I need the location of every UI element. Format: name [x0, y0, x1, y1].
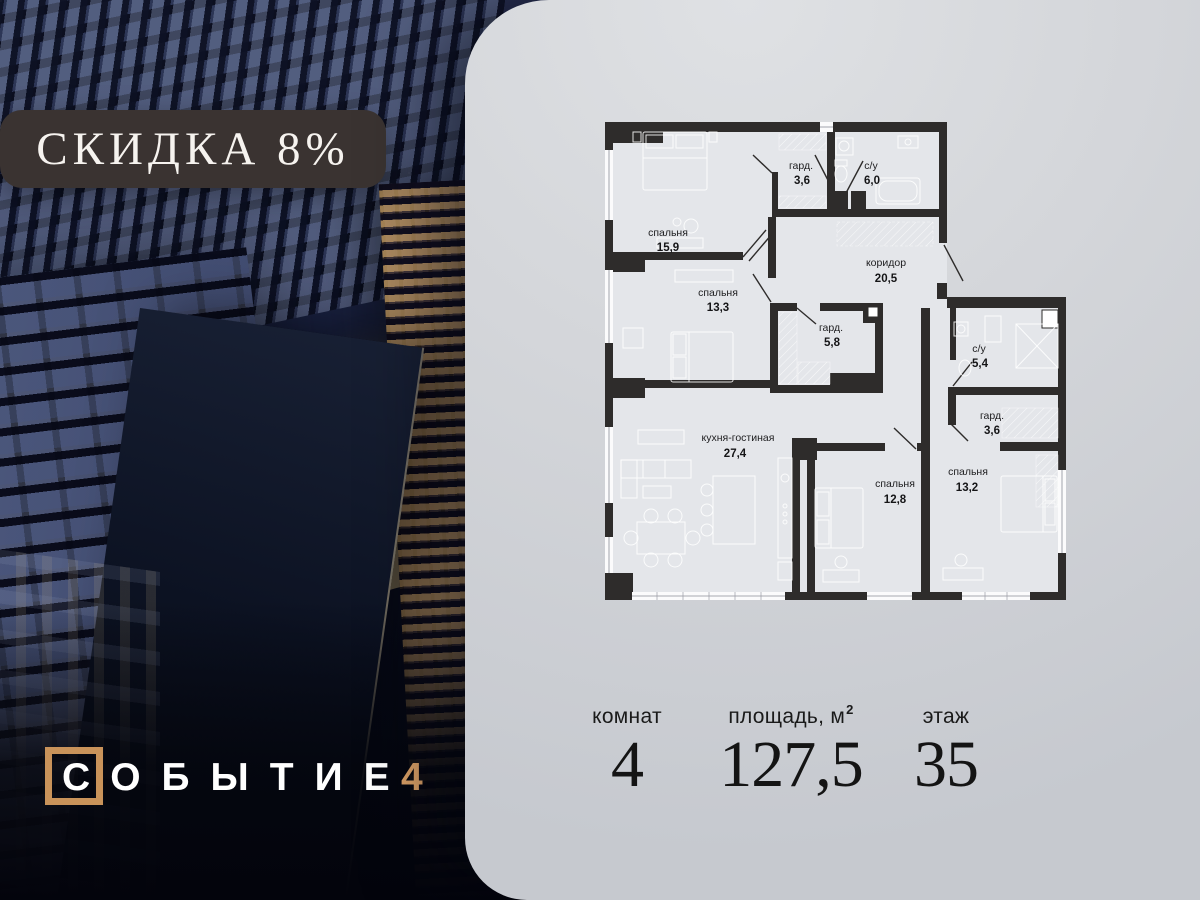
room-area-label: 5,4 [972, 358, 989, 370]
room-area-label: 12,8 [884, 494, 907, 506]
room-name-label: гард. [980, 410, 1004, 422]
room-name-label: гард. [789, 160, 813, 172]
logo-number: 4 [401, 756, 423, 800]
stat-floor-value: 35 [871, 737, 1021, 793]
room-area-label: 13,2 [956, 482, 978, 494]
room-name-label: спальня [698, 287, 738, 299]
room-area-label: 3,6 [794, 175, 810, 187]
stat-area-sup: 2 [846, 702, 854, 717]
room-area-label: 6,0 [864, 175, 880, 187]
room-area-label: 15,9 [657, 242, 679, 254]
stat-rooms: комнат 4 [552, 705, 702, 793]
apartment-card: СКИДКА 8% СОБЫТИЕ 4 комнат 4 площадь, м2… [0, 0, 1200, 900]
stat-rooms-label: комнат [552, 705, 702, 729]
room-name-label: спальня [875, 478, 915, 490]
stat-rooms-value: 4 [552, 737, 702, 793]
stat-floor: этаж 35 [871, 705, 1021, 793]
stat-area-label: площадь, м2 [716, 705, 866, 729]
stat-area-value: 127,5 [716, 737, 866, 793]
room-name-label: кухня-гостиная [702, 432, 775, 444]
room-name-label: спальня [648, 227, 688, 239]
logo-wordmark: СОБЫТИЕ [62, 756, 411, 800]
room-name-label: спальня [948, 466, 988, 478]
room-name-label: с/у [972, 343, 986, 355]
discount-badge: СКИДКА 8% [0, 110, 386, 188]
floor-plan: спальня 15,9 гард. 3,6 с/у 6,0 коридор 2… [595, 110, 1075, 610]
room-area-label: 20,5 [875, 273, 898, 285]
room-name-label: гард. [819, 322, 843, 334]
room-name-label: с/у [864, 160, 878, 172]
room-area-label: 27,4 [724, 448, 747, 460]
discount-badge-label: СКИДКА 8% [36, 122, 349, 176]
stat-floor-label: этаж [871, 705, 1021, 729]
room-area-label: 3,6 [984, 425, 1000, 437]
room-name-label: коридор [866, 257, 906, 269]
stat-area: площадь, м2 127,5 [716, 705, 866, 793]
room-area-label: 5,8 [824, 337, 841, 349]
room-area-label: 13,3 [707, 302, 729, 314]
